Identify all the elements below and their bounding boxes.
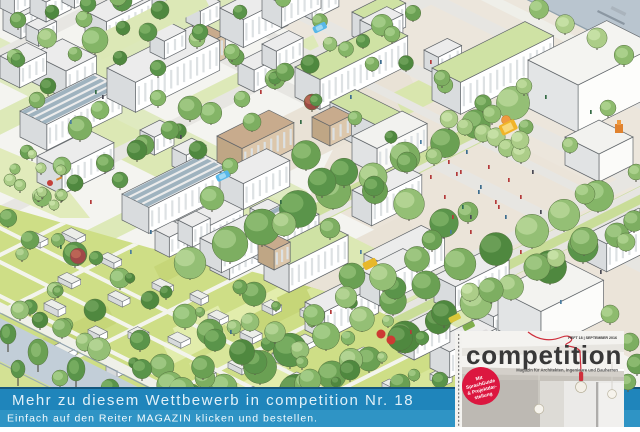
- svg-text:HEFT 18 | SEPTEMBER 2016: HEFT 18 | SEPTEMBER 2016: [568, 336, 617, 340]
- svg-text:Mehr zu diesem Wettbewerb in c: Mehr zu diesem Wettbewerb in competition…: [12, 392, 414, 409]
- svg-text:Einfach auf den Reiter MAGAZIN: Einfach auf den Reiter MAGAZIN klicken u…: [7, 413, 318, 425]
- svg-text:competition: competition: [466, 340, 622, 370]
- svg-text:Magazin für Architekten, Ingen: Magazin für Architekten, Ingenieure und …: [516, 368, 618, 373]
